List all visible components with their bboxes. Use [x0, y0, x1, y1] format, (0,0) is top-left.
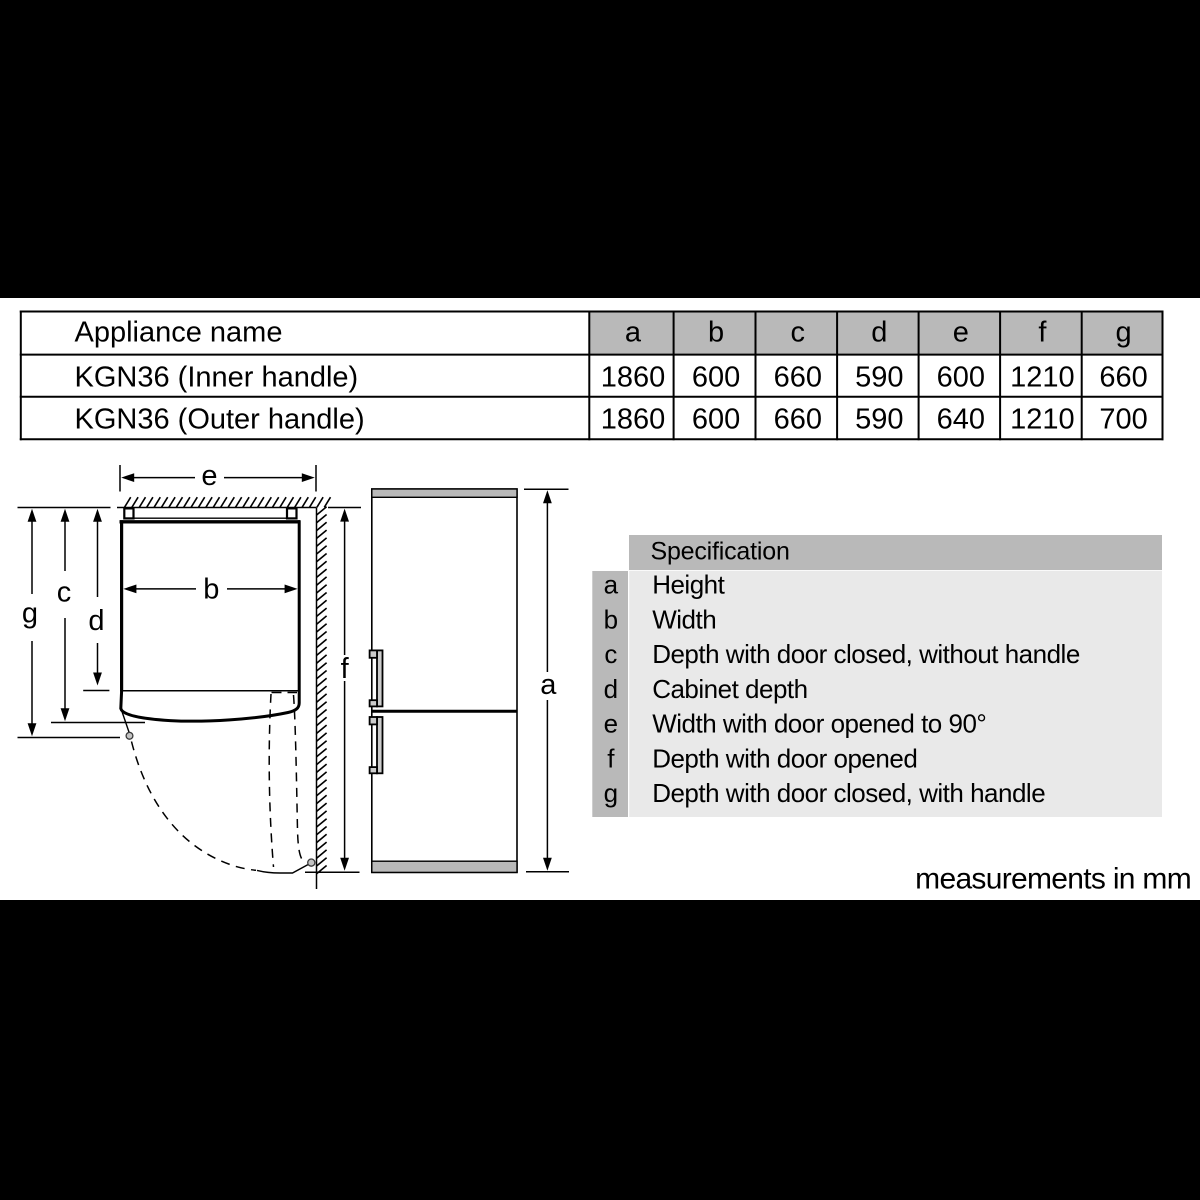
svg-text:g: g — [604, 778, 618, 808]
svg-text:1210: 1210 — [1010, 403, 1075, 435]
svg-text:640: 640 — [937, 403, 985, 435]
svg-text:g: g — [22, 598, 38, 630]
svg-text:600: 600 — [692, 403, 740, 435]
svg-text:Height: Height — [652, 570, 725, 600]
svg-text:600: 600 — [937, 362, 985, 394]
svg-text:700: 700 — [1099, 403, 1147, 435]
svg-text:g: g — [1116, 317, 1132, 349]
svg-text:1860: 1860 — [601, 403, 666, 435]
svg-text:1860: 1860 — [601, 362, 666, 394]
svg-text:Width with door opened to 90°: Width with door opened to 90° — [652, 709, 986, 739]
svg-text:Appliance name: Appliance name — [75, 317, 283, 349]
svg-text:e: e — [201, 460, 217, 492]
svg-text:Width: Width — [652, 604, 716, 634]
svg-text:1210: 1210 — [1010, 362, 1075, 394]
svg-text:KGN36 (Inner handle): KGN36 (Inner handle) — [75, 362, 359, 394]
svg-text:measurements in mm: measurements in mm — [915, 863, 1191, 896]
svg-text:Cabinet depth: Cabinet depth — [652, 674, 807, 704]
svg-text:e: e — [604, 709, 618, 739]
svg-text:660: 660 — [774, 403, 822, 435]
svg-text:660: 660 — [1099, 362, 1147, 394]
svg-text:f: f — [1038, 317, 1047, 349]
svg-text:d: d — [604, 674, 618, 704]
svg-text:Specification: Specification — [651, 538, 790, 566]
svg-text:f: f — [341, 653, 350, 685]
svg-text:600: 600 — [692, 362, 740, 394]
svg-text:590: 590 — [855, 403, 903, 435]
svg-text:d: d — [88, 605, 104, 637]
svg-text:f: f — [607, 743, 615, 773]
svg-text:d: d — [871, 317, 887, 349]
svg-text:KGN36 (Outer handle): KGN36 (Outer handle) — [75, 403, 365, 435]
svg-text:660: 660 — [774, 362, 822, 394]
svg-text:c: c — [57, 577, 72, 609]
svg-text:a: a — [540, 669, 557, 701]
svg-text:c: c — [791, 317, 806, 349]
svg-text:Depth with door closed, withou: Depth with door closed, without handle — [652, 639, 1080, 669]
svg-text:e: e — [953, 317, 969, 349]
svg-text:a: a — [625, 317, 642, 349]
svg-text:Depth with door opened: Depth with door opened — [652, 743, 917, 773]
svg-text:b: b — [604, 604, 618, 634]
svg-text:a: a — [604, 570, 619, 600]
svg-text:c: c — [604, 639, 617, 669]
svg-text:b: b — [203, 574, 219, 606]
svg-text:Depth with door closed, with h: Depth with door closed, with handle — [652, 778, 1045, 808]
svg-text:b: b — [708, 317, 724, 349]
svg-text:590: 590 — [855, 362, 903, 394]
